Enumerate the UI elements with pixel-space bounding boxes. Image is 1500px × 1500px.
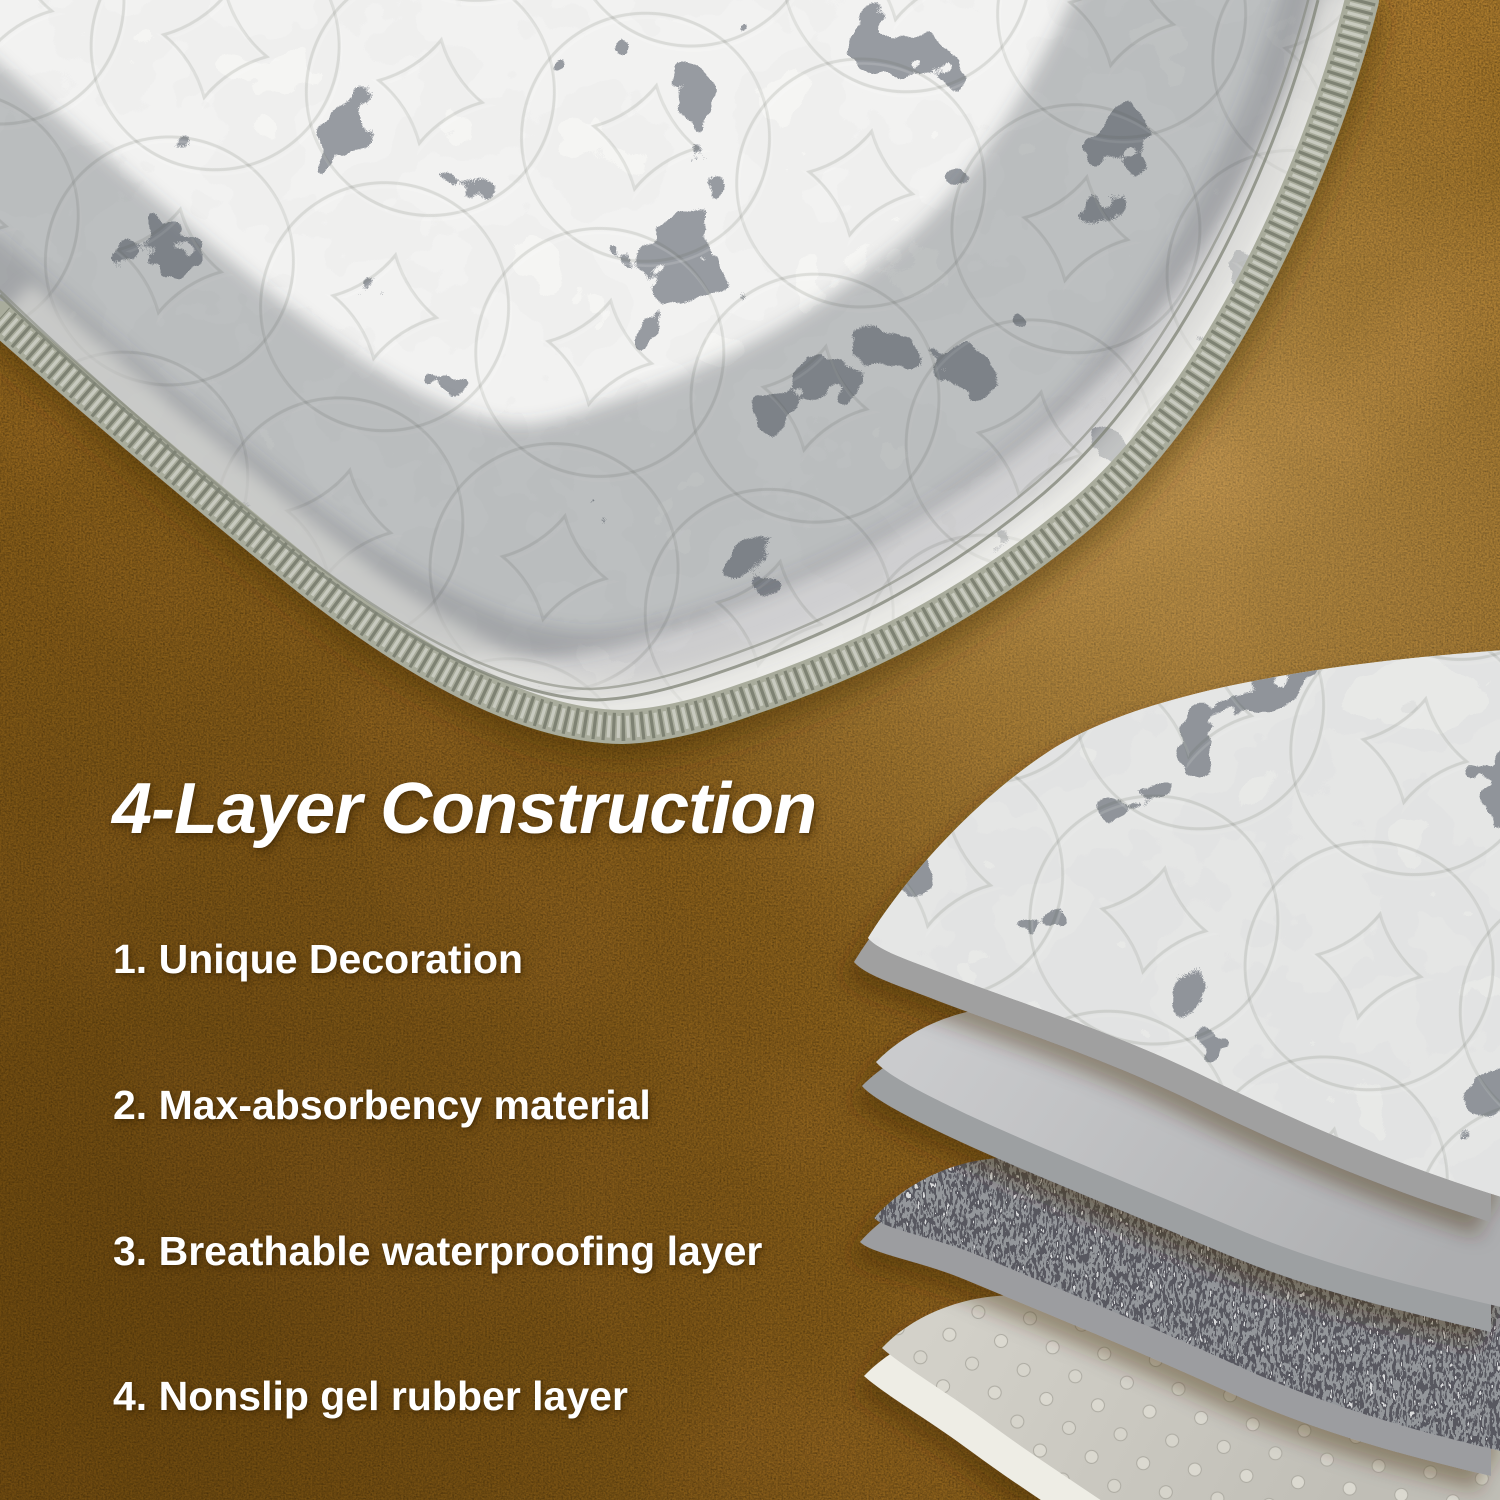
headline: 4-Layer Construction: [112, 768, 816, 850]
product-infographic: 4-Layer Construction 1. Unique Decoratio…: [0, 0, 1500, 1500]
scene-graphic: [0, 0, 1500, 1500]
